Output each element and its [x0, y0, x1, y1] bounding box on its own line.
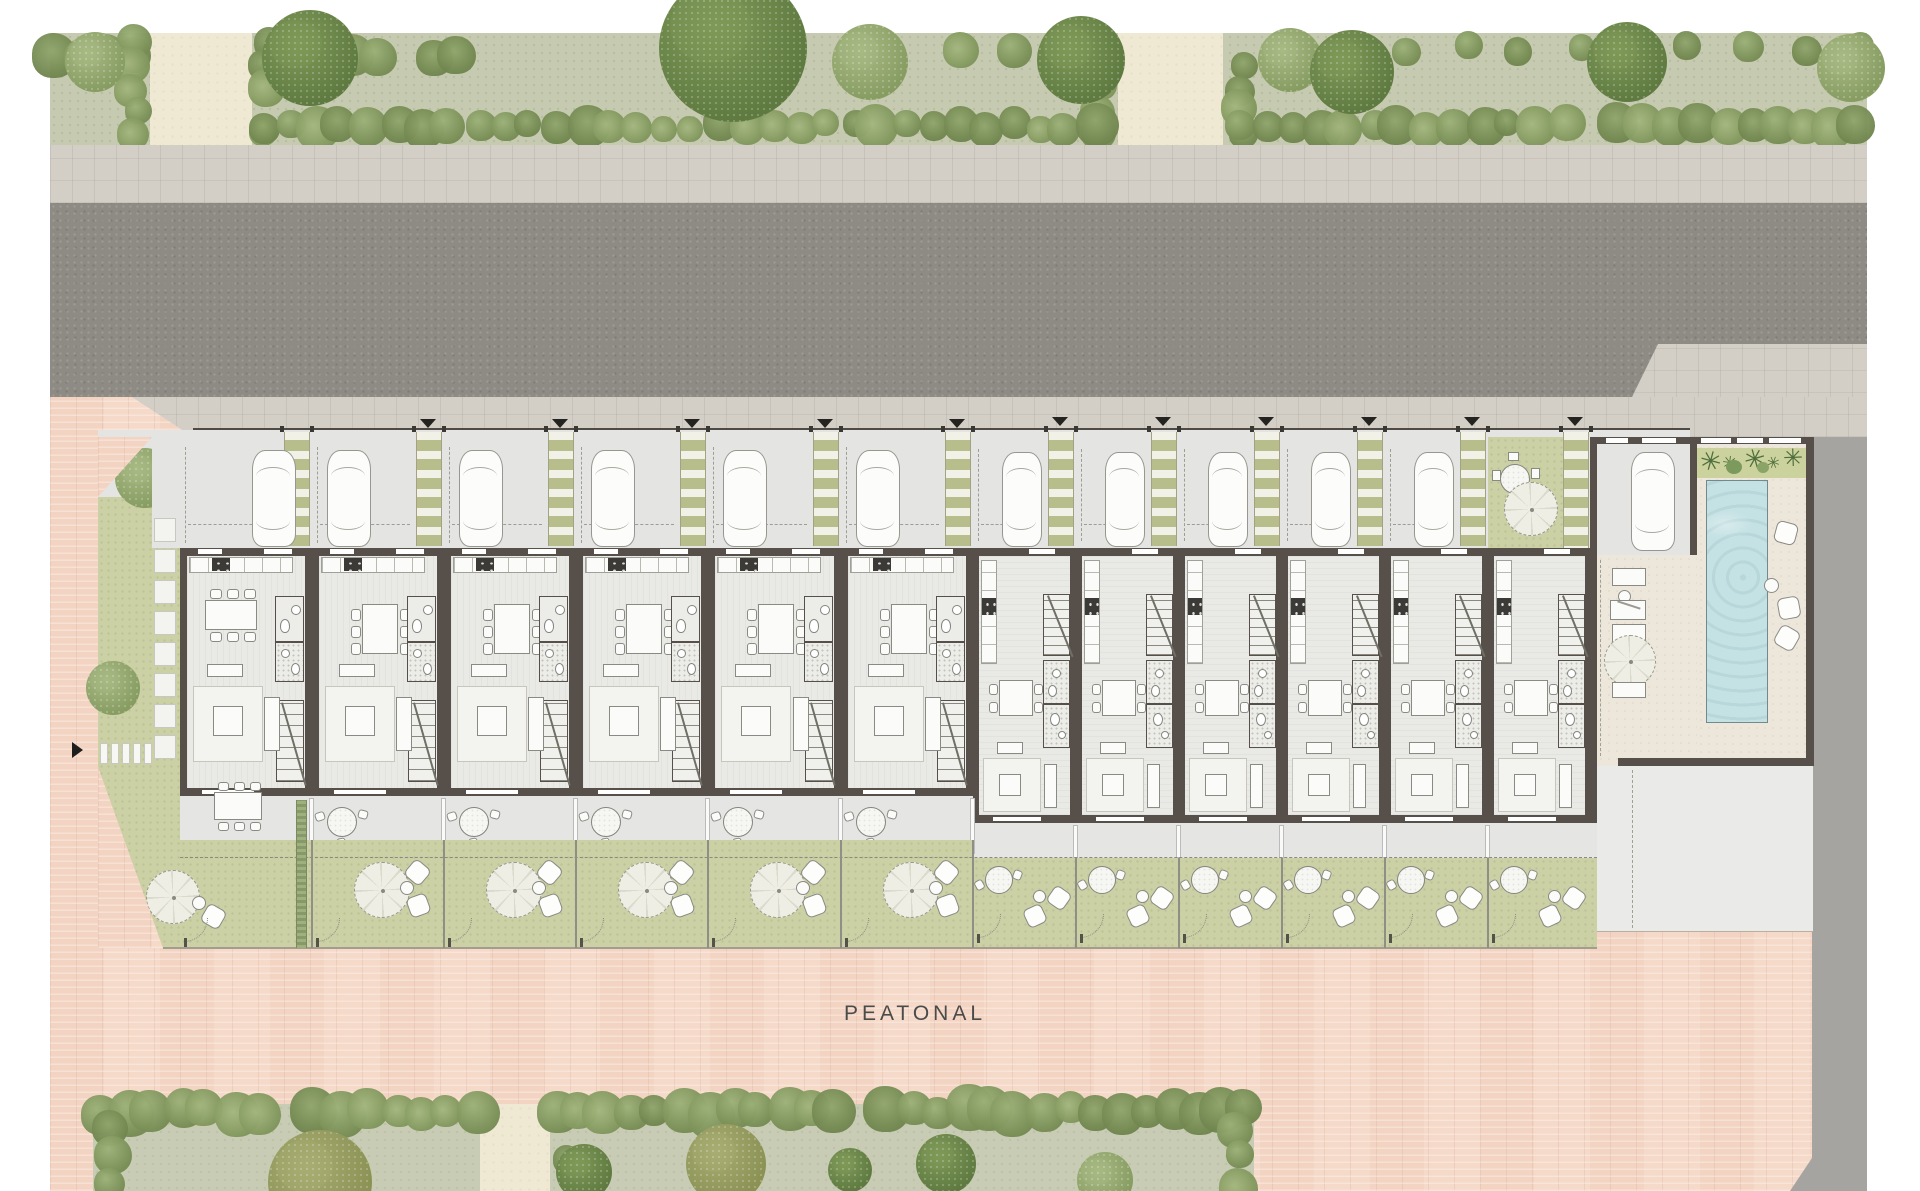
labels: PEATONAL: [0, 0, 1920, 1191]
pedestrian-zone-label: PEATONAL: [790, 1002, 1040, 1026]
architectural-site-plan: ✳✳✳✳✳ PEATONAL: [0, 0, 1920, 1191]
